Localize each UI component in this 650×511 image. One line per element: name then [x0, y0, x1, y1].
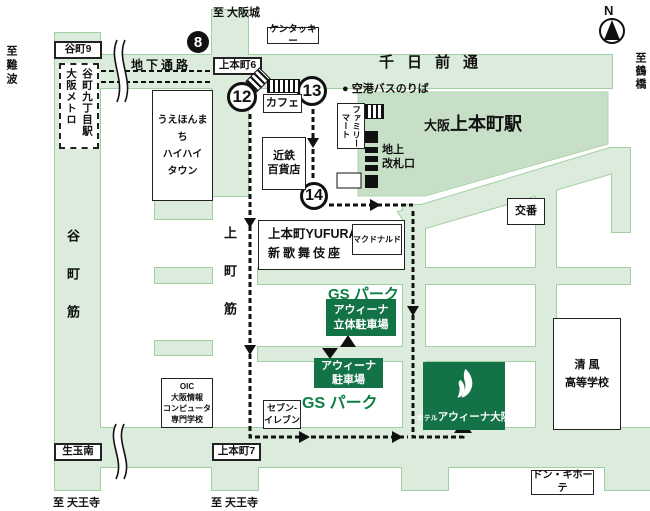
hotel-prefix: ホテル: [417, 415, 438, 422]
lot-line1: アウィーナ: [321, 359, 376, 373]
yufura-line2: 新歌舞伎座: [268, 246, 358, 261]
rittai-line2: 立体駐車場: [334, 318, 389, 332]
oic-line4: 専門学校: [171, 414, 203, 425]
bus-stop-dot-icon: ●: [342, 83, 349, 95]
hihi-line3: タウン: [168, 163, 198, 180]
sign-uehommachi7: 上本町7: [212, 443, 261, 461]
yufura-line1: 上本町YUFURA: [268, 227, 358, 243]
hotel-name: アウィーナ大阪: [438, 411, 512, 423]
rittai-parking-box: アウィーナ 立体駐車場: [326, 299, 396, 336]
road-sennichimae-label: 千日前通: [379, 51, 491, 72]
direction-tennoji-east: 至 天王寺: [211, 494, 258, 510]
hotel-awina-box: ホテルアウィーナ大阪: [423, 362, 505, 430]
direction-namba: 至難波: [3, 45, 19, 87]
seifu-line1: 清 風: [574, 356, 599, 374]
seven-line1: セブン-: [267, 403, 297, 414]
landmark-hihi-town: うえほんまち ハイハイ タウン: [152, 90, 213, 201]
metro-line-name: 大阪メトロ: [63, 68, 79, 144]
airport-bus-stop: ● 空港バスのりば: [342, 80, 429, 96]
rittai-parking-arrow: [340, 335, 356, 347]
road-tanimachi-label: 谷町筋: [63, 229, 82, 343]
airport-bus-label: 空港バスのりば: [352, 83, 429, 95]
seifu-line2: 高等学校: [565, 374, 609, 392]
stairs-icon-famima: [365, 104, 384, 119]
station-name: 大阪上本町駅: [424, 110, 522, 136]
landmark-oic: OIC 大阪情報 コンピュータ 専門学校: [161, 378, 213, 428]
famima-label: ファミリーマート: [340, 104, 361, 148]
landmark-koban: 交番: [507, 198, 545, 225]
road-uemachi-label: 上町筋: [220, 226, 239, 340]
kintetsu-line1: 近鉄: [273, 150, 295, 164]
landmark-kfc: ケンタッキー: [267, 27, 319, 44]
oic-line2: 大阪情報: [171, 392, 203, 403]
stairs-icon-center: [267, 79, 300, 93]
ground-gate-line1: 地上: [382, 143, 415, 157]
compass-icon: [600, 19, 624, 43]
kintetsu-line2: 百貨店: [268, 164, 301, 178]
station-name-prefix: 大阪: [424, 118, 450, 133]
landmark-mcdonalds: マクドナルド: [352, 224, 402, 255]
hihi-line1: うえほんまち: [153, 112, 212, 146]
sign-tanimachi9: 谷町9: [54, 41, 102, 59]
compass-n-label: N: [604, 3, 613, 18]
direction-tsuruhashi: 至鶴橋: [632, 52, 648, 91]
road-break-marks: [113, 40, 127, 479]
direction-osaka-castle: 至 大阪城: [213, 4, 260, 20]
landmark-familymart: ファミリーマート: [337, 103, 365, 149]
seven-line2: イレブン: [264, 415, 300, 426]
ground-gate-line2: 改札口: [382, 157, 415, 171]
landmark-donki: ドン・キホーテ: [531, 470, 594, 495]
awina-parking-box: アウィーナ 駐車場: [314, 358, 383, 388]
direction-tennoji-west: 至 天王寺: [53, 494, 100, 510]
landmark-kintetsu: 近鉄 百貨店: [262, 137, 306, 190]
gs-park-lower-label: GS パーク: [302, 389, 378, 413]
ground-gate-label: 地上 改札口: [382, 143, 415, 171]
landmark-seifu-school: 清 風 高等学校: [553, 318, 621, 430]
metro-station-name: 谷町九丁目駅: [79, 68, 95, 144]
landmark-seven-eleven: セブン- イレブン: [263, 400, 301, 429]
hihi-line2: ハイハイ: [163, 146, 202, 163]
hotel-flame-logo-icon: [447, 365, 481, 403]
ticket-gate-icons: [365, 131, 378, 188]
oic-line1: OIC: [180, 381, 194, 392]
exit-8-badge: 8: [187, 31, 209, 53]
sign-ikutama-minami: 生玉南: [54, 443, 102, 461]
gate-building: [337, 173, 361, 188]
route-map: 至 大阪城 至難波 至鶴橋 至 天王寺 至 天王寺 N 千日前通 谷町筋 上町筋…: [0, 0, 650, 511]
landmark-cafe: カフェ: [263, 94, 302, 113]
oic-line3: コンピュータ: [163, 403, 211, 414]
metro-station-box: 大阪メトロ 谷町九丁目駅: [59, 63, 99, 149]
underground-passage-label: 地下通路: [131, 56, 191, 73]
lot-line2: 駐車場: [332, 373, 365, 387]
station-name-main: 上本町駅: [450, 114, 522, 134]
rittai-line1: アウィーナ: [334, 303, 389, 317]
